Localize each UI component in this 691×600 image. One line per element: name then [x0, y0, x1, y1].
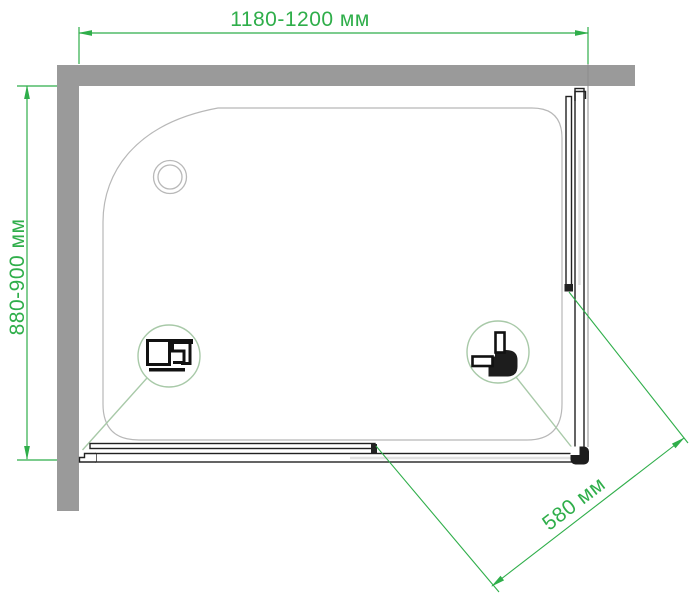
right-detail-callout: [467, 321, 529, 383]
top-wall: [57, 65, 635, 86]
right-rail: [575, 89, 586, 464]
corner-profile: [571, 447, 590, 465]
bottom-rail: [80, 454, 586, 463]
left-wall: [57, 65, 79, 511]
bottom-door-panel: [90, 444, 377, 454]
entry-extension-right: [569, 292, 688, 443]
drawing-canvas: 1180-1200 мм 880-900 мм 580 мм: [0, 0, 691, 600]
width-dimension-label: 1180-1200 мм: [230, 8, 370, 31]
depth-dimension-label: 880-900 мм: [6, 219, 29, 336]
width-dimension: 1180-1200 мм: [79, 8, 588, 64]
right-door-panel: [565, 97, 574, 292]
depth-dimension: 880-900 мм: [6, 86, 57, 460]
shower-enclosure-drawing: 1180-1200 мм 880-900 мм 580 мм: [0, 0, 691, 600]
left-detail-callout: [138, 325, 200, 387]
entry-extension-left: [376, 446, 499, 592]
right-door-end-cap: [565, 284, 574, 292]
bottom-door-end-cap: [371, 444, 377, 453]
bottom-rail-wall-profile-end: [80, 454, 97, 463]
shower-tray-outline: [103, 108, 562, 440]
